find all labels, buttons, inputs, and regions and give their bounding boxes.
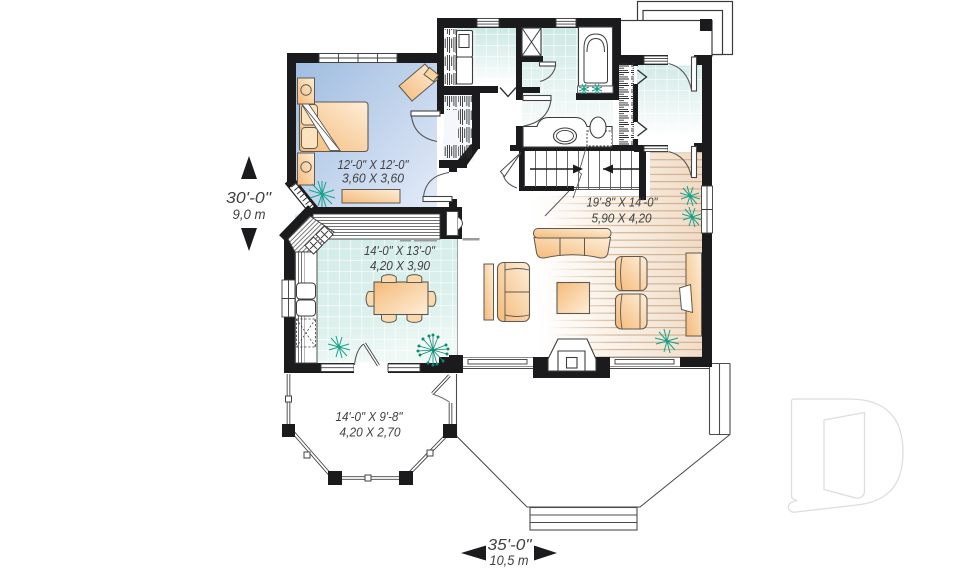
svg-text:3,60 X 3,60: 3,60 X 3,60: [342, 172, 404, 186]
svg-text:4,20 X 2,70: 4,20 X 2,70: [340, 426, 401, 440]
svg-text:5,90 X 4,20: 5,90 X 4,20: [592, 212, 652, 226]
svg-text:9,0 m: 9,0 m: [233, 207, 266, 222]
svg-text:10,5 m: 10,5 m: [490, 553, 529, 568]
svg-text:19'-8" X 14'-0": 19'-8" X 14'-0": [587, 196, 658, 210]
svg-text:14'-0" X 9'-8": 14'-0" X 9'-8": [336, 410, 403, 424]
svg-text:14'-0" X 13'-0": 14'-0" X 13'-0": [364, 244, 435, 258]
svg-text:30'-0": 30'-0": [226, 190, 272, 207]
svg-text:12'-0" X 12'-0": 12'-0" X 12'-0": [338, 158, 409, 172]
svg-text:35'-0": 35'-0": [488, 537, 533, 554]
svg-text:4,20 X 3,90: 4,20 X 3,90: [370, 259, 430, 273]
